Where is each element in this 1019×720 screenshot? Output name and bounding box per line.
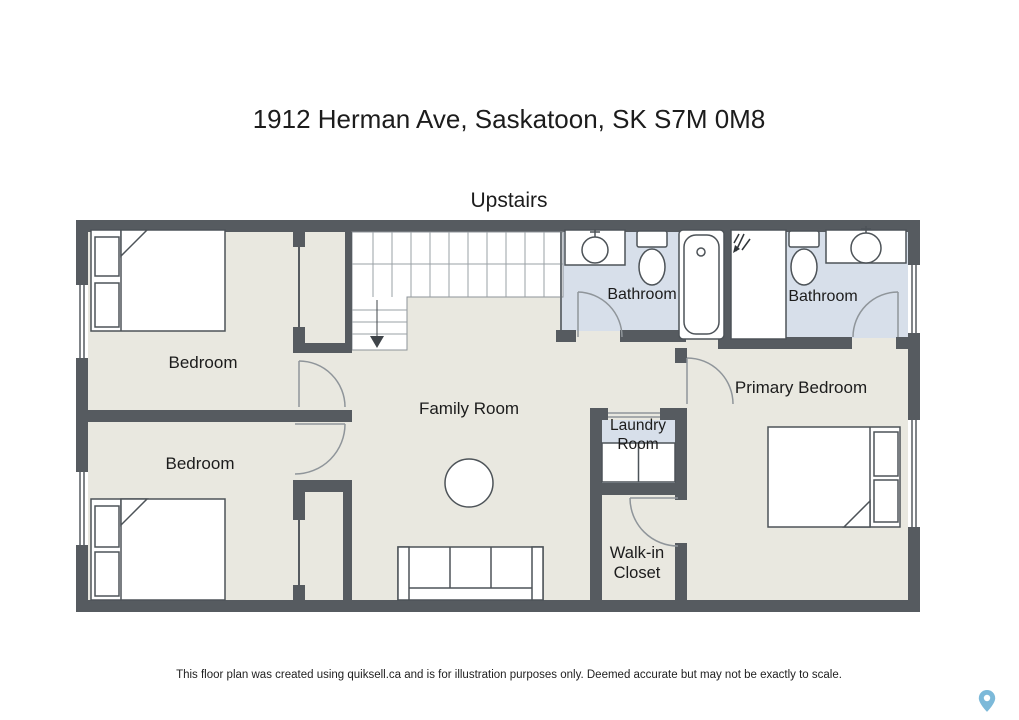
bed-icon xyxy=(91,230,225,331)
sink-icon xyxy=(826,226,906,263)
room-label-bedroom-bottom: Bedroom xyxy=(166,454,235,474)
room-label-bathroom-right: Bathroom xyxy=(788,288,857,306)
shower-icon xyxy=(731,230,786,339)
round-table-icon xyxy=(445,459,493,507)
floor-label: Upstairs xyxy=(470,189,547,213)
room-label-walk-in-closet: Walk-in Closet xyxy=(610,543,664,583)
window-icon xyxy=(908,265,920,333)
room-label-bathroom-left: Bathroom xyxy=(607,286,676,304)
window-icon xyxy=(76,285,88,358)
room-label-primary-bedroom: Primary Bedroom xyxy=(735,378,867,398)
page-title: 1912 Herman Ave, Saskatoon, SK S7M 0M8 xyxy=(253,104,766,135)
room-label-laundry-room: Laundry Room xyxy=(610,416,666,454)
disclaimer-text: This floor plan was created using quikse… xyxy=(176,669,842,681)
room-label-family-room: Family Room xyxy=(419,399,519,419)
sofa-icon xyxy=(398,547,543,600)
closet-label-line2: Closet xyxy=(610,563,664,583)
bed-icon xyxy=(91,499,225,600)
floor-plan-page: 1912 Herman Ave, Saskatoon, SK S7M 0M8 U… xyxy=(0,0,1019,720)
laundry-label-line1: Laundry xyxy=(610,416,666,435)
map-pin-icon[interactable] xyxy=(977,689,997,713)
bed-icon xyxy=(768,427,900,527)
bathtub-icon xyxy=(679,230,724,339)
window-icon xyxy=(76,472,88,545)
sink-icon xyxy=(565,229,625,265)
laundry-label-line2: Room xyxy=(610,435,666,454)
toilet-icon xyxy=(789,231,819,285)
room-label-bedroom-top: Bedroom xyxy=(169,353,238,373)
map-pin-dot xyxy=(984,695,990,701)
window-icon xyxy=(908,420,920,527)
toilet-icon xyxy=(637,231,667,285)
closet-label-line1: Walk-in xyxy=(610,543,664,563)
